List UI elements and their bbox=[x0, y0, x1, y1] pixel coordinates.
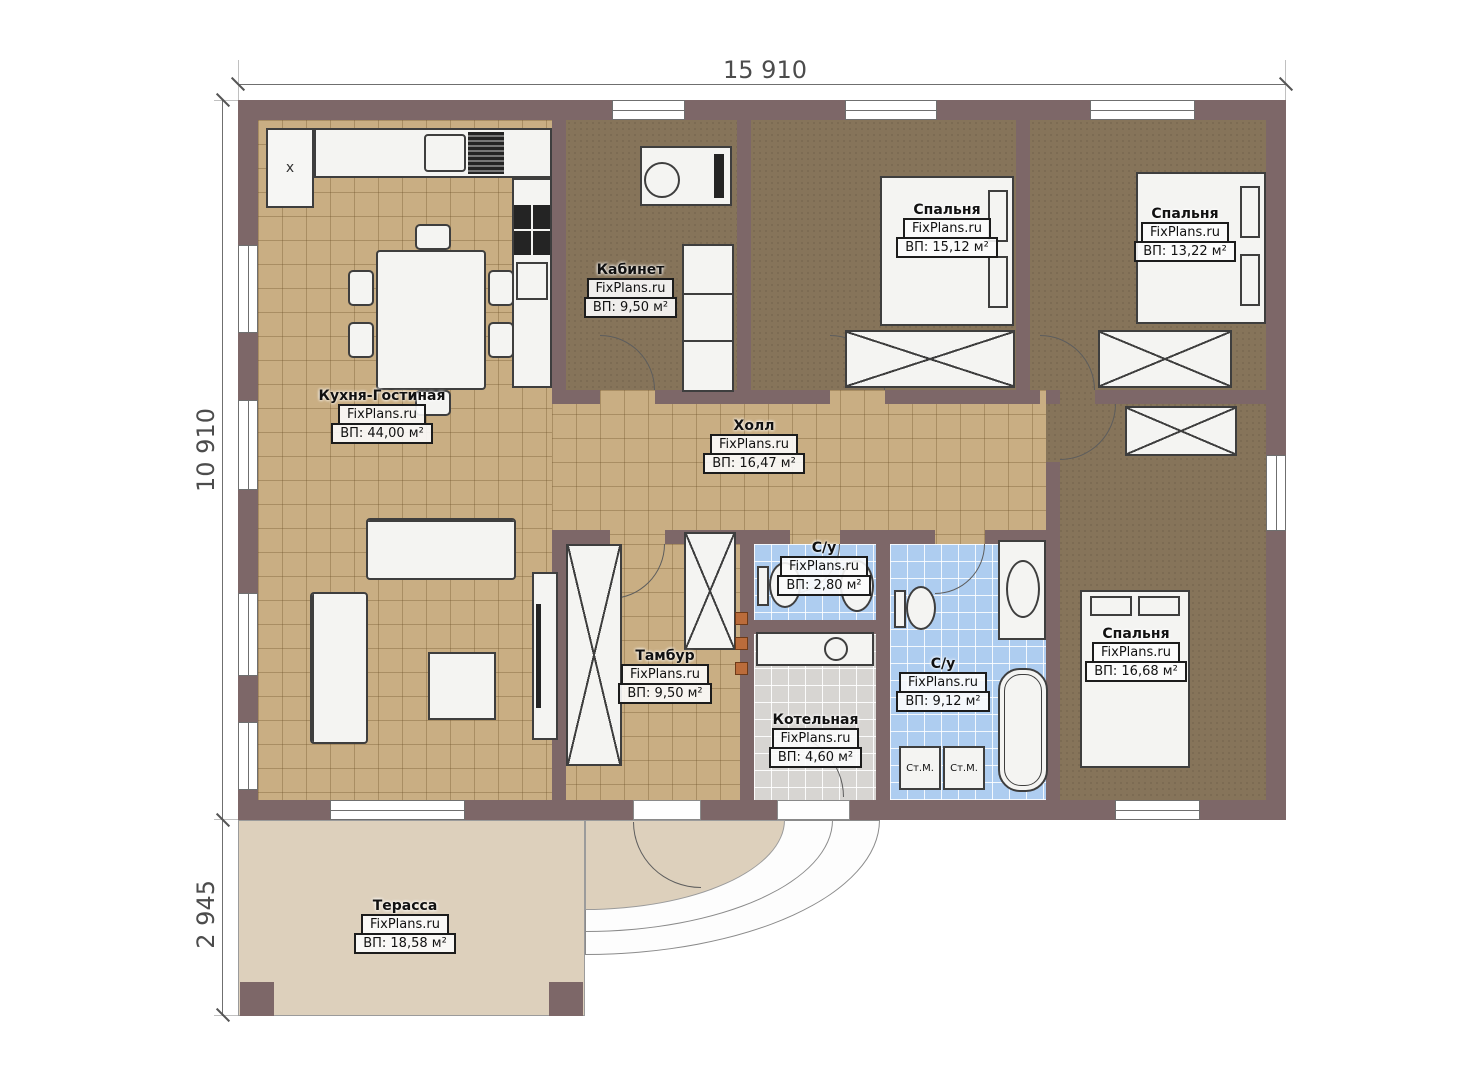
wall-segment bbox=[655, 390, 830, 404]
room-area: ВП: 18,58 м² bbox=[354, 933, 456, 954]
room-label-kitchen-living: Кухня-Гостиная FixPlans.ru ВП: 44,00 м² bbox=[302, 388, 462, 444]
room-area: ВП: 16,68 м² bbox=[1085, 661, 1187, 682]
room-brand: FixPlans.ru bbox=[780, 556, 868, 577]
room-area: ВП: 44,00 м² bbox=[331, 423, 433, 444]
sofa bbox=[366, 518, 516, 580]
room-label-bathroom-big: С/у FixPlans.ru ВП: 9,12 м² bbox=[888, 656, 998, 712]
room-name: С/у bbox=[812, 540, 837, 556]
washbasin bbox=[1006, 560, 1040, 618]
wall-segment bbox=[552, 530, 610, 544]
window bbox=[612, 100, 685, 120]
pillow bbox=[1138, 596, 1180, 616]
room-label-vestibule: Тамбур FixPlans.ru ВП: 9,50 м² bbox=[606, 648, 724, 704]
wall-segment bbox=[885, 390, 1040, 404]
kitchen-sink bbox=[424, 134, 466, 172]
dimension-tick bbox=[216, 813, 230, 827]
room-area: ВП: 16,47 м² bbox=[703, 453, 805, 474]
dimension-line-top bbox=[238, 84, 1286, 85]
room-name: С/у bbox=[931, 656, 956, 672]
wall-segment bbox=[552, 120, 566, 398]
room-name: Спальня bbox=[913, 202, 980, 218]
kitchen-corner-unit: x bbox=[266, 128, 314, 208]
coffee-table bbox=[428, 652, 496, 720]
tv bbox=[536, 604, 541, 708]
room-label-office: Кабинет FixPlans.ru ВП: 9,50 м² bbox=[568, 262, 693, 318]
room-brand: FixPlans.ru bbox=[587, 278, 675, 299]
pillow bbox=[988, 256, 1008, 308]
room-name: Кухня-Гостиная bbox=[319, 388, 446, 404]
room-name: Холл bbox=[734, 418, 775, 434]
room-area: ВП: 9,50 м² bbox=[618, 683, 711, 704]
oven bbox=[516, 262, 548, 300]
wall-segment bbox=[1046, 462, 1060, 800]
chair bbox=[488, 322, 514, 358]
terrace-door-opening bbox=[633, 800, 701, 820]
dining-table bbox=[376, 250, 486, 390]
wall-segment bbox=[552, 390, 600, 404]
radiator bbox=[735, 637, 748, 650]
room-brand: FixPlans.ru bbox=[903, 218, 991, 239]
room-label-hall: Холл FixPlans.ru ВП: 16,47 м² bbox=[694, 418, 814, 474]
window bbox=[238, 722, 258, 790]
washing-machine-label: Ст.М. bbox=[906, 763, 934, 774]
chair bbox=[348, 270, 374, 306]
chair bbox=[415, 224, 451, 250]
dimension-terrace-depth: 2 945 bbox=[192, 872, 220, 957]
floor-kitchen-living bbox=[258, 120, 552, 800]
extension-line bbox=[1285, 60, 1286, 100]
room-brand: FixPlans.ru bbox=[338, 404, 426, 425]
window bbox=[1090, 100, 1195, 120]
boiler-counter bbox=[756, 632, 874, 666]
floor-plan: x Ст.М. Ст.М. bbox=[0, 0, 1473, 1080]
pillow bbox=[1090, 596, 1132, 616]
entrance-door-opening bbox=[777, 800, 850, 820]
room-area: ВП: 9,50 м² bbox=[584, 297, 677, 318]
monitor bbox=[714, 154, 724, 198]
stove bbox=[514, 205, 550, 255]
room-brand: FixPlans.ru bbox=[361, 914, 449, 935]
room-name: Спальня bbox=[1151, 206, 1218, 222]
terrace-post bbox=[549, 982, 583, 1016]
corner-mark: x bbox=[286, 160, 294, 176]
room-brand: FixPlans.ru bbox=[621, 664, 709, 685]
chair bbox=[348, 322, 374, 358]
dimension-line-terrace bbox=[222, 820, 223, 1016]
dimension-height-total: 10 910 bbox=[192, 400, 220, 500]
kitchen-appliance bbox=[468, 132, 504, 174]
boiler-sink bbox=[824, 637, 848, 661]
dimension-line-left bbox=[222, 100, 223, 820]
window bbox=[238, 400, 258, 490]
window bbox=[330, 800, 465, 820]
window bbox=[1266, 455, 1286, 531]
wardrobe bbox=[845, 330, 1015, 388]
room-area: ВП: 4,60 м² bbox=[769, 747, 862, 768]
room-label-bedroom-2: Спальня FixPlans.ru ВП: 13,22 м² bbox=[1120, 206, 1250, 262]
room-name: Кабинет bbox=[597, 262, 665, 278]
extension-line bbox=[238, 60, 239, 100]
room-name: Терасса bbox=[373, 898, 438, 914]
room-brand: FixPlans.ru bbox=[1092, 642, 1180, 663]
room-label-terrace: Терасса FixPlans.ru ВП: 18,58 м² bbox=[340, 898, 470, 954]
wardrobe bbox=[684, 532, 736, 650]
wall-segment bbox=[1016, 120, 1030, 390]
chair bbox=[488, 270, 514, 306]
room-brand: FixPlans.ru bbox=[1141, 222, 1229, 243]
wardrobe bbox=[1125, 406, 1237, 456]
washing-machine: Ст.М. bbox=[943, 746, 985, 790]
room-label-boiler-room: Котельная FixPlans.ru ВП: 4,60 м² bbox=[758, 712, 873, 768]
bathtub-inner bbox=[1004, 674, 1042, 786]
room-label-bedroom-1: Спальня FixPlans.ru ВП: 15,12 м² bbox=[882, 202, 1012, 258]
window bbox=[845, 100, 937, 120]
wall-segment bbox=[1046, 390, 1060, 404]
room-label-bathroom-small: С/у FixPlans.ru ВП: 2,80 м² bbox=[768, 540, 880, 596]
window bbox=[1115, 800, 1200, 820]
room-area: ВП: 2,80 м² bbox=[777, 575, 870, 596]
room-name: Котельная bbox=[773, 712, 859, 728]
extension-line bbox=[214, 819, 238, 820]
room-area: ВП: 15,12 м² bbox=[896, 237, 998, 258]
radiator bbox=[735, 662, 748, 675]
washing-machine: Ст.М. bbox=[899, 746, 941, 790]
room-brand: FixPlans.ru bbox=[899, 672, 987, 693]
toilet-tank bbox=[894, 590, 906, 628]
terrace-post bbox=[240, 982, 274, 1016]
room-name: Спальня bbox=[1102, 626, 1169, 642]
sofa bbox=[310, 592, 368, 744]
radiator bbox=[735, 612, 748, 625]
dimension-width-total: 15 910 bbox=[715, 56, 815, 84]
washing-machine-label: Ст.М. bbox=[950, 763, 978, 774]
room-area: ВП: 13,22 м² bbox=[1134, 241, 1236, 262]
toilet-bowl bbox=[906, 586, 936, 630]
wall-segment bbox=[737, 120, 751, 390]
wall-segment bbox=[1095, 390, 1266, 404]
window bbox=[238, 593, 258, 676]
office-chair bbox=[644, 162, 680, 198]
room-brand: FixPlans.ru bbox=[710, 434, 798, 455]
room-area: ВП: 9,12 м² bbox=[896, 691, 989, 712]
wardrobe bbox=[1098, 330, 1232, 388]
room-name: Тамбур bbox=[635, 648, 694, 664]
room-brand: FixPlans.ru bbox=[772, 728, 860, 749]
window bbox=[238, 245, 258, 333]
room-label-bedroom-3: Спальня FixPlans.ru ВП: 16,68 м² bbox=[1076, 626, 1196, 682]
